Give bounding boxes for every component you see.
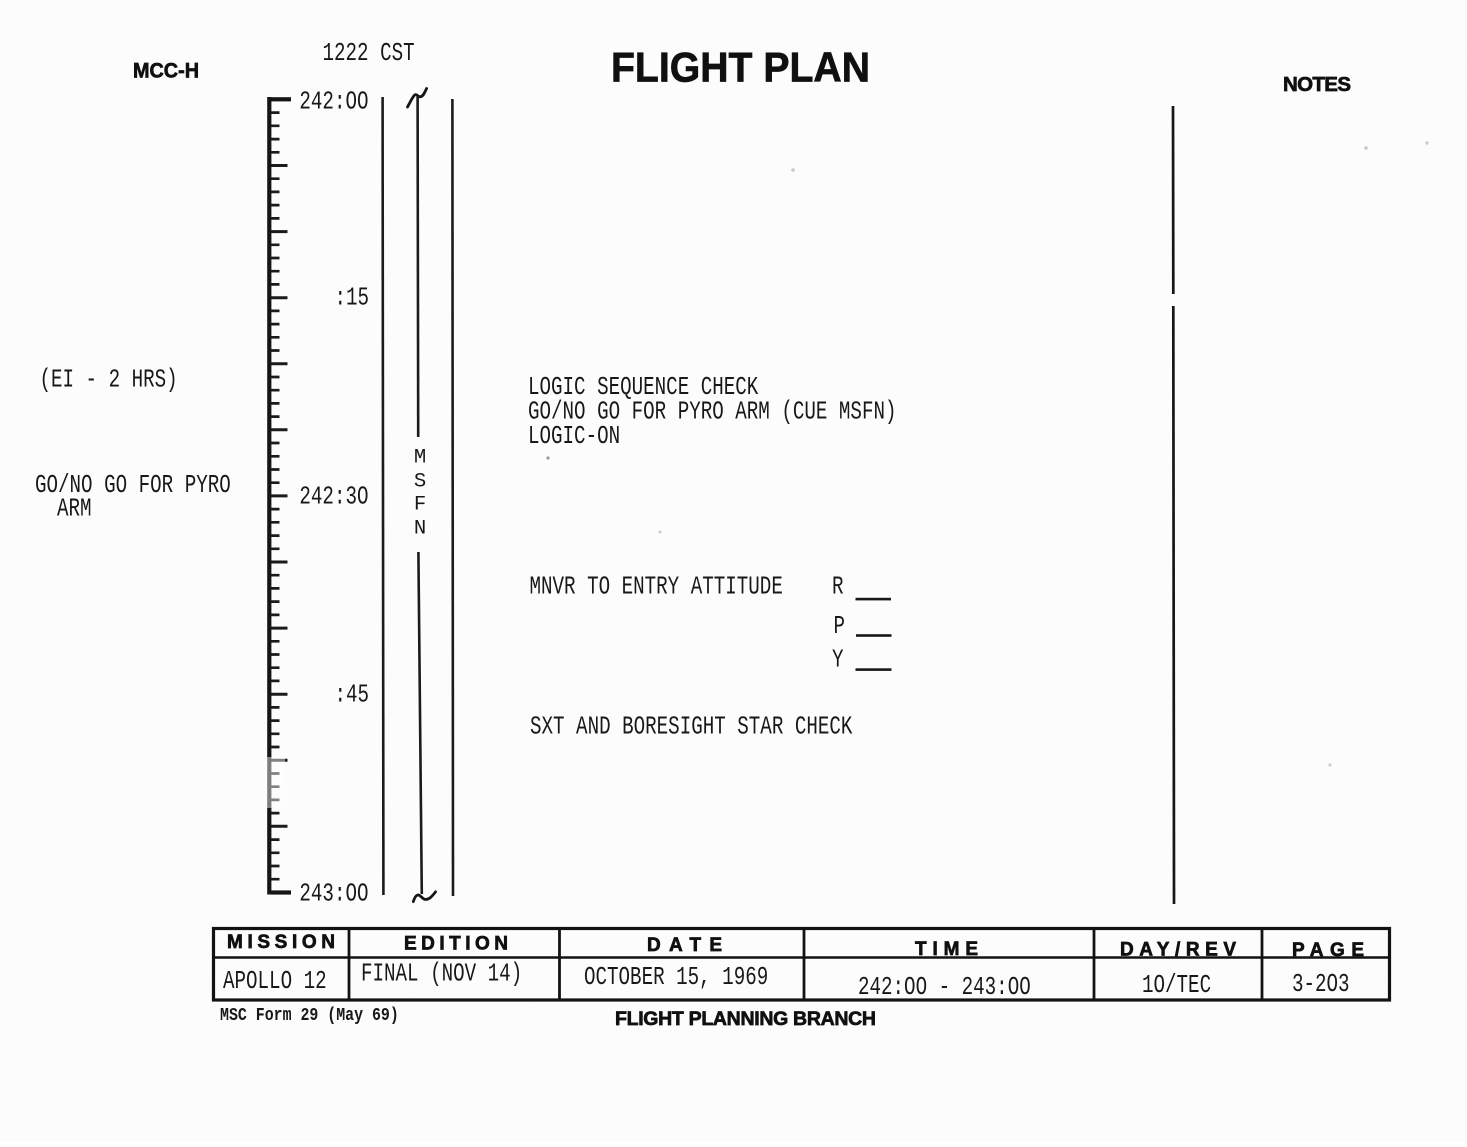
svg-text:1222 CST: 1222 CST <box>323 38 415 67</box>
svg-text::45: :45 <box>334 680 369 709</box>
svg-text:NOTES: NOTES <box>1283 73 1351 96</box>
svg-text:FINAL (NOV 14): FINAL (NOV 14) <box>361 959 522 988</box>
svg-text:(EI - 2 HRS): (EI - 2 HRS) <box>40 365 178 394</box>
svg-text:R: R <box>832 572 844 601</box>
svg-text:Y: Y <box>832 645 844 674</box>
svg-text:N: N <box>414 518 426 541</box>
svg-text:S: S <box>414 471 426 494</box>
svg-text:MSC Form 29 (May 69): MSC Form 29 (May 69) <box>220 1006 399 1027</box>
svg-text:242:OO - 243:OO: 242:OO - 243:OO <box>858 972 1031 1001</box>
svg-text:P: P <box>834 612 846 641</box>
svg-text:FLIGHT PLANNING BRANCH: FLIGHT PLANNING BRANCH <box>615 1008 876 1030</box>
svg-text:F: F <box>414 494 426 517</box>
svg-text:243:OO: 243:OO <box>299 879 368 908</box>
svg-text:OCTOBER 15, 1969: OCTOBER 15, 1969 <box>584 962 768 991</box>
svg-text:TIME: TIME <box>915 939 978 960</box>
svg-text:LOGIC-ON: LOGIC-ON <box>528 421 620 450</box>
svg-text:242:3O: 242:3O <box>299 482 368 511</box>
svg-text:MCC-H: MCC-H <box>133 59 199 83</box>
svg-text::15: :15 <box>334 283 369 312</box>
svg-text:ARM: ARM <box>57 494 92 523</box>
svg-text:242:OO: 242:OO <box>299 87 368 116</box>
svg-text:FLIGHT PLAN: FLIGHT PLAN <box>611 44 870 91</box>
svg-text:APOLLO 12: APOLLO 12 <box>223 966 327 995</box>
svg-text:3-2O3: 3-2O3 <box>1292 969 1350 998</box>
svg-text:MNVR TO ENTRY ATTITUDE: MNVR TO ENTRY ATTITUDE <box>530 572 783 601</box>
svg-text:1O/TEC: 1O/TEC <box>1142 970 1211 999</box>
svg-text:SXT AND BORESIGHT STAR CHECK: SXT AND BORESIGHT STAR CHECK <box>530 712 853 741</box>
svg-text:M: M <box>414 447 426 470</box>
